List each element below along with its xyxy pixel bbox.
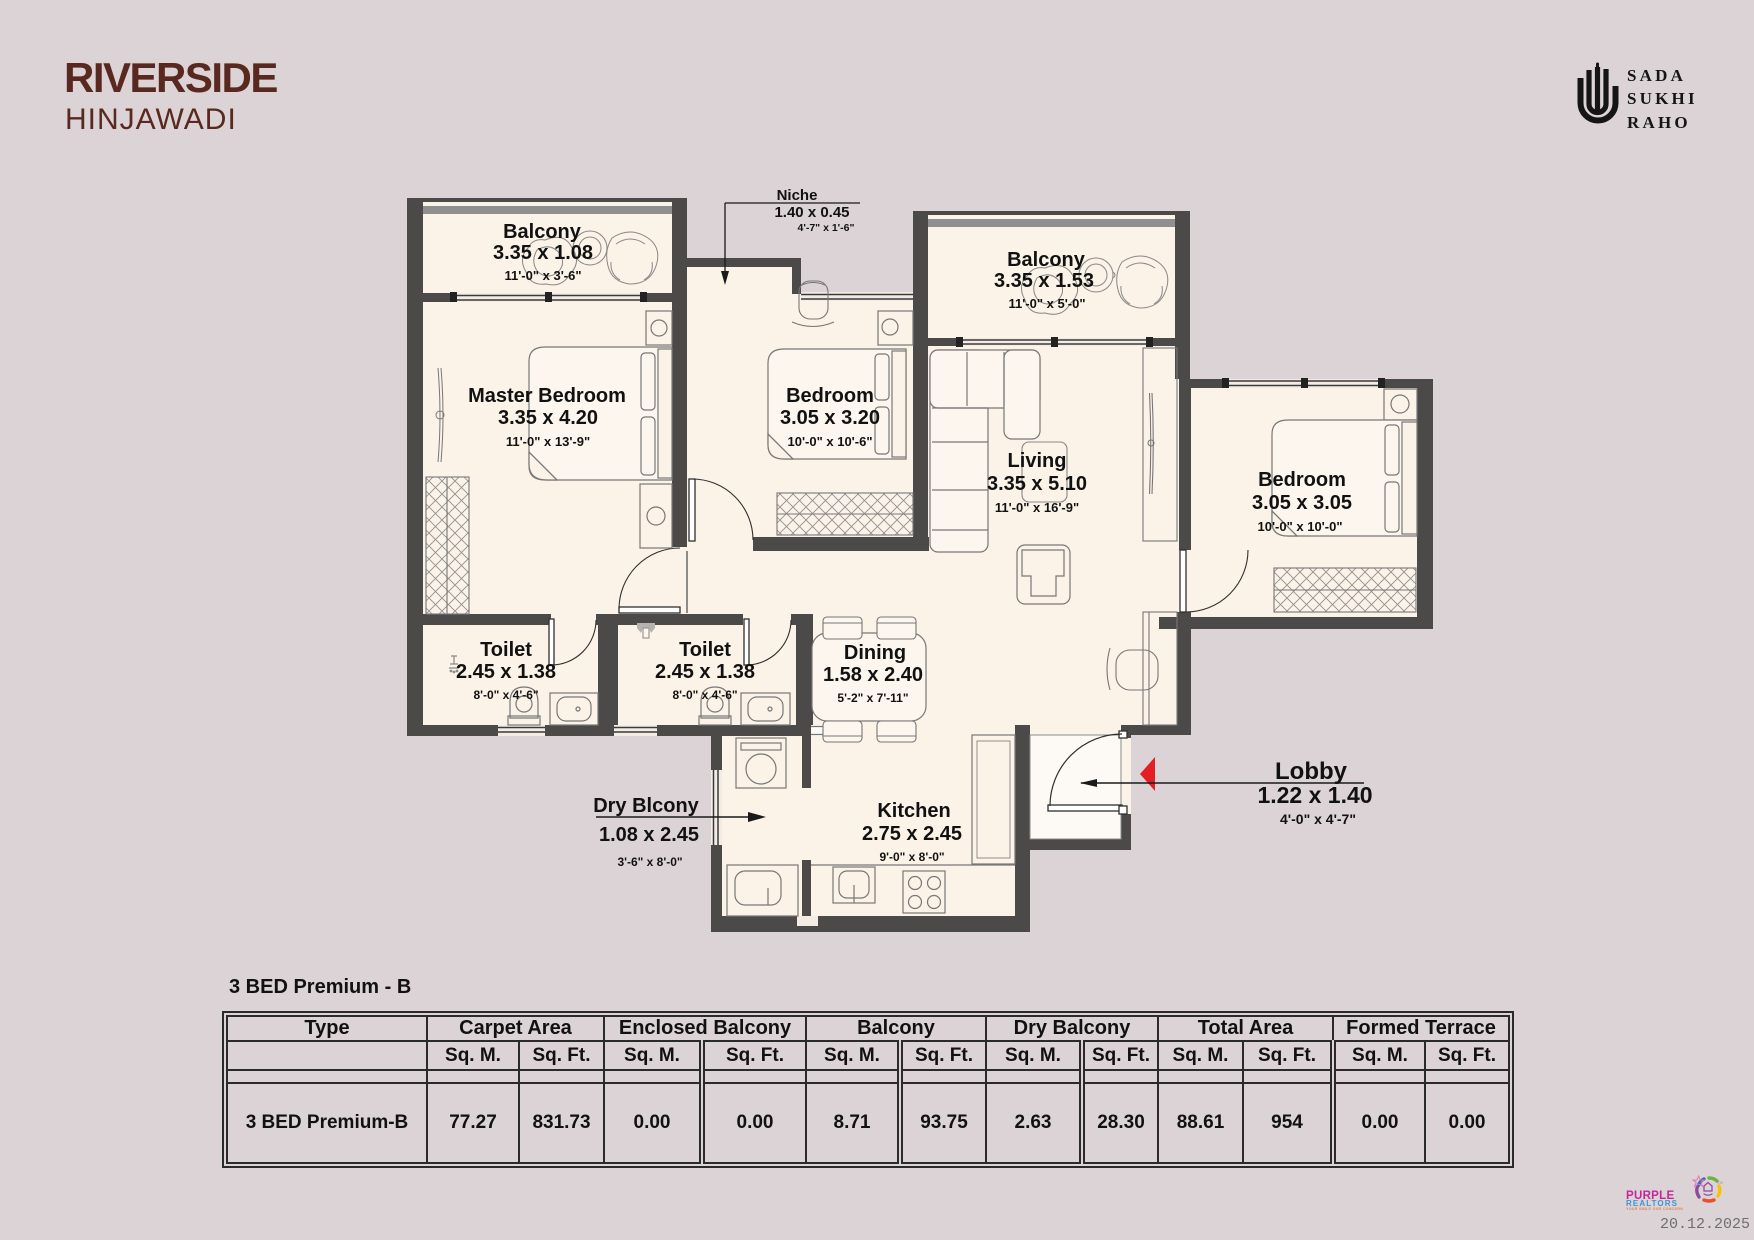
svg-text:1.40 x 0.45: 1.40 x 0.45: [774, 204, 849, 221]
svg-text:8'-0" x 4'-6": 8'-0" x 4'-6": [473, 688, 538, 702]
svg-text:3.35 x 1.53: 3.35 x 1.53: [994, 270, 1094, 292]
svg-text:Bedroom: Bedroom: [1258, 469, 1346, 491]
svg-text:10'-0" x 10'-0": 10'-0" x 10'-0": [1257, 519, 1342, 534]
svg-text:Balcony: Balcony: [503, 221, 582, 243]
svg-text:3'-6" x 8'-0": 3'-6" x 8'-0": [617, 855, 682, 869]
svg-text:11'-0" x 16'-9": 11'-0" x 16'-9": [995, 500, 1079, 515]
svg-text:Kitchen: Kitchen: [877, 800, 950, 822]
svg-text:Dining: Dining: [844, 642, 906, 664]
svg-text:TM: TM: [1717, 1180, 1723, 1185]
svg-text:1.58 x 2.40: 1.58 x 2.40: [823, 664, 923, 686]
svg-text:YOUR SMILE OUR CONCERN: YOUR SMILE OUR CONCERN: [1626, 1207, 1683, 1211]
svg-text:Bedroom: Bedroom: [786, 385, 874, 407]
svg-text:10'-0" x 10'-6": 10'-0" x 10'-6": [787, 434, 872, 449]
svg-text:SUKHI: SUKHI: [1627, 89, 1698, 108]
svg-text:3.35 x 4.20: 3.35 x 4.20: [498, 407, 598, 429]
svg-text:Dry Blcony: Dry Blcony: [593, 795, 699, 817]
svg-text:8'-0" x 4'-6": 8'-0" x 4'-6": [672, 688, 737, 702]
svg-text:3.05 x 3.05: 3.05 x 3.05: [1252, 492, 1352, 514]
svg-text:4'-7" x 1'-6": 4'-7" x 1'-6": [798, 222, 855, 234]
svg-text:SADA: SADA: [1627, 66, 1686, 85]
svg-text:1.08 x 2.45: 1.08 x 2.45: [599, 824, 699, 846]
svg-text:Balcony: Balcony: [1007, 249, 1086, 271]
svg-text:Toilet: Toilet: [480, 639, 532, 661]
svg-text:11'-0" x 5'-0": 11'-0" x 5'-0": [1008, 296, 1085, 311]
svg-text:Master Bedroom: Master Bedroom: [468, 385, 626, 407]
svg-text:Toilet: Toilet: [679, 639, 731, 661]
svg-text:RAHO: RAHO: [1627, 113, 1691, 132]
svg-text:Niche: Niche: [777, 187, 818, 204]
svg-text:Living: Living: [1008, 450, 1067, 472]
svg-text:4'-0" x 4'-7": 4'-0" x 4'-7": [1280, 811, 1356, 827]
svg-text:2.45 x 1.38: 2.45 x 1.38: [456, 661, 556, 683]
svg-text:2.45 x 1.38: 2.45 x 1.38: [655, 661, 755, 683]
svg-text:9'-0" x 8'-0": 9'-0" x 8'-0": [879, 850, 944, 864]
svg-text:1.22 x 1.40: 1.22 x 1.40: [1257, 782, 1372, 808]
svg-text:Lobby: Lobby: [1275, 758, 1348, 785]
svg-text:11'-0" x 13'-9": 11'-0" x 13'-9": [506, 434, 590, 449]
svg-text:5'-2" x 7'-11": 5'-2" x 7'-11": [837, 691, 908, 705]
svg-text:2.75 x 2.45: 2.75 x 2.45: [862, 823, 962, 845]
svg-text:3.05 x 3.20: 3.05 x 3.20: [780, 407, 880, 429]
svg-text:11'-0" x 3'-6": 11'-0" x 3'-6": [504, 268, 581, 283]
svg-text:3.35 x 1.08: 3.35 x 1.08: [493, 242, 593, 264]
svg-text:3.35 x 5.10: 3.35 x 5.10: [987, 473, 1087, 495]
